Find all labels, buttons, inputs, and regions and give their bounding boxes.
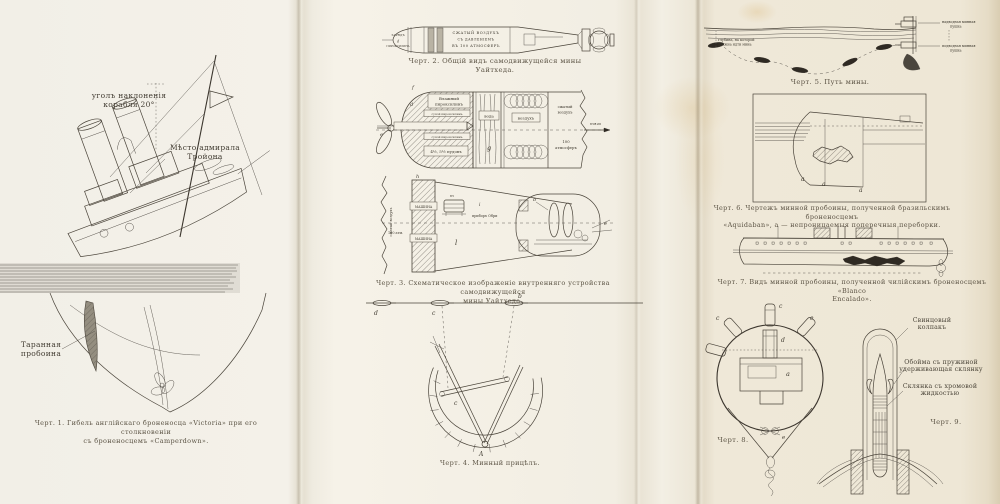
fig3-letter-b: b — [533, 197, 536, 203]
fig1-ram-label: Таранная пробоина — [12, 341, 70, 358]
fig2-head-letter: d — [397, 40, 400, 44]
fig3-thrust-label: тяга — [590, 121, 601, 126]
admiral-line2: Тройона — [163, 153, 247, 162]
fig9-clip-line1: Обойма съ пружиной — [893, 359, 989, 366]
incline-line2: корабля 20° — [84, 101, 174, 110]
fig6-letter-a1: a — [801, 176, 805, 183]
ram-line2: пробоина — [12, 350, 70, 359]
scanned-plate-page: уголъ наклоненія корабля 20° Мѣсто адмир… — [0, 0, 1000, 504]
tail-capsule — [516, 194, 612, 256]
fig2-head-text-2: ПИРОКСИЛИНА — [386, 44, 409, 48]
fig3-obry-label: приборъ Обри — [472, 214, 498, 218]
fig5-caption-line: Черт. 5. Путь мины. — [770, 78, 890, 87]
fig5-above-1: надводная минная — [942, 20, 975, 24]
fig2-caption: Черт. 2. Общій видъ самодвижущейся мины … — [395, 57, 595, 75]
fig4-letter-arm: c — [454, 400, 458, 407]
protractor — [421, 336, 545, 460]
fig7-blanco-encalada — [708, 226, 998, 278]
fig3-water-label: вода — [484, 114, 494, 119]
water-band — [0, 263, 240, 293]
nose-propeller — [373, 100, 394, 156]
ship-with-tubes — [895, 16, 920, 70]
heeled-hull — [31, 58, 284, 266]
fig9-cap-line2: колпакъ — [900, 324, 964, 331]
fig9-vial-line2: жидкостью — [898, 390, 982, 397]
compressed-air-section: сжатый воздухъ 100 атмосферъ — [555, 90, 587, 168]
fig2-air-text-1: СЖАТЫЙ ВОЗДУХЪ — [453, 30, 500, 35]
fig1-caption: Черт. 1. Гибель англійскаго броненосца «… — [18, 419, 274, 445]
fig7-caption-line1: Черт. 7. Видъ минной пробоины, полученно… — [708, 278, 996, 295]
thrust-arrow — [584, 128, 610, 132]
fig4-letter-pivot: A — [478, 451, 484, 458]
charge-case — [740, 358, 802, 391]
fig3-letter-g: g — [487, 144, 491, 152]
fig4-caption-line: Черт. 4. Минный прицѣлъ. — [435, 459, 545, 468]
fig3-dry-1: сухой пироксилинъ — [432, 112, 463, 116]
torn-left-edge — [381, 176, 387, 274]
fig9-cap-label: Свинцовый колпакъ — [900, 317, 964, 332]
fig1-caption-line1: Черт. 1. Гибель англійскаго броненосца «… — [18, 419, 274, 437]
fig3-letter-e: e — [380, 132, 383, 138]
mine-horns — [705, 304, 816, 357]
fig1-caption-line2: съ броненосцемъ «Camperdown». — [18, 437, 274, 446]
fig8-letter-left: c — [716, 315, 720, 322]
fig3-compressed-2: воздухъ — [558, 111, 574, 115]
fig3-atm-2: атмосферъ — [555, 145, 577, 150]
fig9-cap-line1: Свинцовый — [900, 317, 964, 324]
fig8-caption: Черт. 8. — [714, 436, 752, 445]
fig3-compressed-1: сжатый — [558, 105, 573, 109]
fig1-admiral-label: Мѣсто адмирала Тройона — [163, 144, 247, 161]
fig3-letter-i: i — [479, 202, 481, 208]
fig9-caption-line: Черт. 9. — [926, 418, 966, 427]
spring-clips — [867, 379, 894, 394]
mooring-bridle — [728, 408, 812, 496]
tail-propeller-assembly — [578, 28, 614, 52]
flange-left — [851, 450, 863, 494]
fig5-caption: Черт. 5. Путь мины. — [770, 78, 890, 87]
torn-hole — [843, 256, 905, 266]
fig3-wet-2: пироксилинъ — [435, 102, 464, 107]
fig3-letter-f: f — [411, 85, 415, 91]
machine-band — [412, 180, 435, 272]
hull-profile — [733, 226, 953, 266]
fig9-caption: Черт. 9. — [926, 418, 966, 427]
fig9-vial-line1: Склянка съ хромовой — [898, 383, 982, 390]
mine-hole-blob — [813, 146, 853, 164]
fig3-upper-section: Влажный пироксилинъ сухой пироксилинъ су… — [376, 84, 616, 176]
mine-shell — [817, 454, 943, 487]
fig3-left-atm: 100 атм. — [388, 231, 403, 235]
fig2-caption-line: Черт. 2. Общій видъ самодвижущейся мины … — [395, 57, 595, 75]
fig4-caption: Черт. 4. Минный прицѣлъ. — [435, 459, 545, 468]
water-hatch — [755, 123, 810, 141]
fig4-mine-sight: d c b — [362, 293, 647, 458]
fig4-letter-t2: c — [432, 310, 436, 317]
casemate-2 — [856, 228, 872, 238]
fig8-letter-top: c — [779, 303, 783, 310]
fig3-atm-1: 100 — [562, 139, 570, 144]
fig3-letter-e2: e — [604, 221, 607, 227]
fig9-clip-label: Обойма съ пружиной удерживающая склянку — [893, 359, 989, 374]
fig8-letter-shackle: e — [782, 435, 786, 441]
fig3-dry-2: сухой пироксилинъ — [432, 135, 463, 139]
fig6-caption-line1: Черт. 6. Чертежъ минной пробоины, получе… — [712, 204, 952, 221]
fig4-letter-t3: b — [518, 293, 522, 300]
fig2-head-text-1: ЗАРЯДЪ — [391, 33, 405, 37]
flange-right — [897, 450, 909, 494]
fig3-lower-section: сжатый воздухъ 100 атм. МАШИНА МАШИНА h … — [376, 170, 616, 282]
lead-cap-dome — [863, 329, 897, 480]
fig3-weight: 4½, 5½ пудовъ — [430, 149, 462, 154]
fig6-aquidaban: a a a — [726, 90, 938, 208]
fig9-clip-line2: удерживающая склянку — [893, 366, 989, 373]
fig8-letter-right: e — [810, 315, 814, 322]
fig2-air-text-2: СЪ ДАВЛЕНІЕМЪ — [458, 38, 495, 42]
casemate-1 — [814, 228, 830, 238]
fig8-letter-body: a — [786, 370, 790, 378]
fig3-letter-d: d — [410, 102, 413, 108]
fig3-machine-2: МАШИНА — [415, 237, 433, 241]
fig3-letter-m: m — [450, 193, 454, 198]
fig3-letter-l: l — [455, 239, 457, 247]
sight-lines — [442, 306, 514, 388]
fig5-above-2: пушка — [950, 25, 962, 29]
fig4-letter-t1: d — [374, 310, 378, 317]
fig3-wet-1: Влажный — [439, 96, 459, 101]
fig5-depth-2: должна идти мина — [718, 43, 752, 47]
fig5-depth-1: глубина, на которой — [718, 38, 755, 42]
fig2-air-text-3: ВЪ 100 АТМОСФЕРЪ — [452, 44, 500, 48]
underwater-bow — [50, 293, 266, 412]
bow-section — [793, 112, 925, 187]
fig1-victoria-drawing — [0, 55, 320, 427]
propeller-sketch — [150, 371, 176, 396]
fig1-incline-label: уголъ наклоненія корабля 20° — [84, 92, 174, 109]
obry-device: m i приборъ Обри — [442, 193, 498, 218]
fig5-below-2: пушка — [950, 49, 962, 53]
fig5-mine-path: глубина, на которой должна идти мина над… — [698, 14, 1000, 86]
fig5-below-1: подводная минная — [942, 44, 976, 48]
leader-lines — [62, 159, 165, 349]
fig3-air-label: воздухъ — [518, 116, 535, 121]
detonator — [763, 330, 777, 358]
fig6-letter-a2: a — [822, 181, 826, 188]
fig3-letter-h: h — [416, 174, 419, 180]
fig9-vial-label: Склянка съ хромовой жидкостью — [898, 383, 982, 398]
fig3-machine-1: МАШИНА — [415, 205, 433, 209]
porthole-row — [756, 242, 932, 244]
fig8-letter-det: d — [781, 337, 785, 344]
fig6-letter-a3: a — [859, 187, 863, 194]
fig8-caption-line: Черт. 8. — [714, 436, 752, 445]
